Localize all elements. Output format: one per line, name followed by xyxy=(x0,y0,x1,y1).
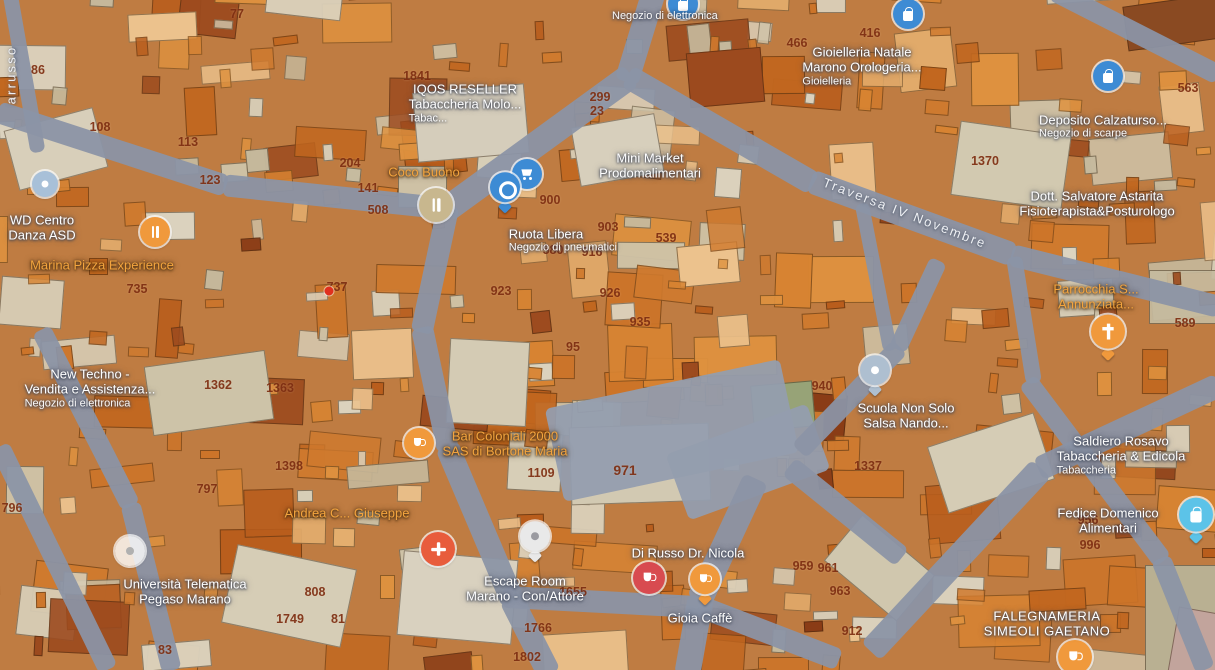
marker-head xyxy=(1093,61,1123,91)
poi-label-universita-telematica-pegaso[interactable]: Università TelematicaPegaso Marano xyxy=(123,577,246,608)
building-block xyxy=(432,43,457,61)
poi-label-line: Scuola Non Solo xyxy=(858,401,955,416)
building-block xyxy=(944,319,968,343)
poi-marker-scuola-salsa[interactable] xyxy=(860,355,890,395)
building-block xyxy=(981,308,1009,330)
parcel-number: 299 xyxy=(590,90,611,104)
marker-head xyxy=(860,355,890,385)
road-segment xyxy=(889,257,947,353)
building-block xyxy=(1036,48,1063,70)
poi-label-line: Ruota Libera xyxy=(509,226,583,241)
building-block xyxy=(929,27,951,36)
poi-marker-coco-buono[interactable] xyxy=(419,188,453,222)
parcel-number: 1370 xyxy=(971,154,999,168)
building-block xyxy=(832,219,843,241)
dot-icon xyxy=(122,543,138,559)
poi-marker-parrocchia-church[interactable] xyxy=(1091,315,1125,360)
poi-label-line: IQOS RESELLER xyxy=(409,82,522,97)
building-block xyxy=(188,36,202,55)
building-block xyxy=(498,43,509,67)
parcel-number: 735 xyxy=(127,282,148,296)
building-block xyxy=(996,358,1017,369)
poi-label-line: Marina Pizza Experience xyxy=(30,257,174,272)
poi-label-line: Tabaccheria & Edicola xyxy=(1057,449,1186,464)
parcel-number: 1802 xyxy=(513,650,541,664)
poi-label-line: Pegaso Marano xyxy=(123,592,246,607)
cup-icon xyxy=(697,571,713,587)
marker-head xyxy=(32,171,58,197)
building-block xyxy=(668,280,686,290)
building-block xyxy=(171,326,185,346)
building-block xyxy=(21,346,35,356)
building-block xyxy=(517,289,532,311)
parcel-number: 1362 xyxy=(204,378,232,392)
fork-icon xyxy=(147,224,163,240)
parcel-number: 1766 xyxy=(524,621,552,635)
building-block xyxy=(216,469,244,507)
building-block xyxy=(297,490,313,502)
parcel-number: 95 xyxy=(566,340,580,354)
building-block xyxy=(220,69,232,89)
poi-label-subtitle: Negozio di scarpe xyxy=(1039,128,1127,141)
parcel-number: 1337 xyxy=(854,459,882,473)
poi-marker-ruota-libera[interactable] xyxy=(490,172,520,212)
poi-label-iqos-reseller[interactable]: IQOS RESELLERTabaccheria Molo...Tabac... xyxy=(409,82,522,113)
poi-label-line: Annunziata... xyxy=(1053,297,1138,312)
building-block xyxy=(552,355,575,379)
building-block xyxy=(380,575,395,599)
building-block xyxy=(241,238,262,253)
building-block xyxy=(1059,98,1083,112)
poi-label-line: Parrocchia S... xyxy=(1053,282,1138,297)
building-block xyxy=(807,256,874,304)
building-block xyxy=(1196,146,1212,155)
marker-head xyxy=(520,521,550,551)
poi-label-line: Saldiero Rosavo xyxy=(1057,434,1186,449)
building-block xyxy=(717,313,750,348)
building-block xyxy=(1177,177,1196,187)
building-block xyxy=(757,21,772,44)
parcel-number: 961 xyxy=(818,561,839,575)
marker-head xyxy=(1179,498,1213,532)
poi-label-line: Prodomalimentari xyxy=(599,166,701,181)
parcel-number: 1363 xyxy=(266,381,294,395)
building-block xyxy=(390,308,413,318)
parcel-number: 996 xyxy=(1080,538,1101,552)
building-block xyxy=(310,401,333,424)
map-canvas[interactable]: 7718418610811312320414150823299900903539… xyxy=(0,0,1215,670)
building-block xyxy=(1046,546,1062,569)
dot-icon xyxy=(867,362,883,378)
terrain-patch xyxy=(144,350,275,436)
marker-head xyxy=(115,536,145,566)
building-block xyxy=(34,636,44,657)
marker-tail xyxy=(1101,347,1115,361)
building-block xyxy=(834,153,844,164)
building-block xyxy=(400,378,409,393)
building-block xyxy=(470,655,483,670)
building-block xyxy=(1123,70,1143,85)
building-block xyxy=(625,345,649,380)
parcel-number: 926 xyxy=(600,286,621,300)
building-block xyxy=(28,274,50,285)
poi-label-gioia-caffe[interactable]: Gioia Caffè xyxy=(668,610,733,625)
parcel-number: 204 xyxy=(340,156,361,170)
street-name-arrusso: arrusso xyxy=(4,46,19,105)
building-block xyxy=(397,485,422,502)
building-block xyxy=(826,440,848,451)
bag-icon xyxy=(1187,505,1205,523)
building-block xyxy=(542,51,562,64)
poi-label-line: New Techno - xyxy=(25,367,156,382)
poi-marker-wd-centro[interactable] xyxy=(32,171,58,197)
parcel-number: 903 xyxy=(598,220,619,234)
building-block xyxy=(919,66,947,91)
poi-label-parrocchia-annunziata[interactable]: Parrocchia S...Annunziata... xyxy=(1053,282,1138,313)
church-icon xyxy=(1099,322,1117,340)
building-block xyxy=(957,588,986,601)
terrain-patch xyxy=(686,47,766,108)
poi-label-line: Tabaccheria Molo... xyxy=(409,97,522,112)
building-block xyxy=(988,372,999,393)
poi-label-line: Mini Market xyxy=(599,151,701,166)
building-block xyxy=(804,620,824,632)
poi-label-new-techno[interactable]: New Techno -Vendita e Assistenza...Negoz… xyxy=(25,367,156,398)
building-block xyxy=(200,450,220,459)
poi-label-saldiero-tabaccheria[interactable]: Saldiero RosavoTabaccheria & EdicolaTaba… xyxy=(1057,434,1186,465)
poi-marker-fedice-domenico[interactable] xyxy=(1179,498,1213,543)
building-block xyxy=(700,633,745,670)
building-block xyxy=(737,0,791,11)
building-block xyxy=(535,21,545,41)
tire-icon xyxy=(497,179,513,195)
poi-label-mini-market-prodomalimentari[interactable]: Mini MarketProdomalimentari xyxy=(599,151,701,182)
parcel-number: 108 xyxy=(90,120,111,134)
parcel-number: 86 xyxy=(31,63,45,77)
fork-icon xyxy=(427,196,445,214)
poi-label-line: Alimentari xyxy=(1057,521,1158,536)
building-block xyxy=(924,99,949,116)
building-block xyxy=(324,465,339,478)
building-block xyxy=(205,298,224,308)
parcel-number: 935 xyxy=(630,315,651,329)
poi-label-subtitle: Gioielleria xyxy=(802,75,851,88)
building-block xyxy=(714,167,743,199)
parcel-number: 912 xyxy=(842,624,863,638)
poi-marker-farmacia-cross[interactable] xyxy=(421,532,455,566)
poi-label-falegnameria-simeoli[interactable]: FALEGNAMERIASIMEOLI GAETANO xyxy=(984,609,1110,640)
poi-label-gioielleria-natale[interactable]: Gioielleria NataleMarono Orologeria...Gi… xyxy=(802,45,921,76)
parcel-number: 81 xyxy=(331,612,345,626)
marker-head xyxy=(404,428,434,458)
cup-icon xyxy=(1066,648,1084,666)
building-block xyxy=(1097,372,1112,396)
bag-icon xyxy=(1100,68,1116,84)
parcel-number: 416 xyxy=(860,26,881,40)
building-block xyxy=(89,0,114,8)
building-block xyxy=(575,268,585,279)
building-block xyxy=(583,301,598,313)
parcel-number: 808 xyxy=(305,585,326,599)
building-block xyxy=(284,55,307,80)
parcel-number: 23 xyxy=(590,104,604,118)
parcel-number: 796 xyxy=(2,501,23,515)
poi-label-scuola-non-solo-salsa[interactable]: Scuola Non SoloSalsa Nando... xyxy=(858,401,955,432)
building-block xyxy=(645,524,654,533)
poi-label-coco-buono[interactable]: Coco Buono xyxy=(388,164,460,179)
marker-head xyxy=(1058,640,1092,670)
building-block xyxy=(68,446,78,465)
building-block xyxy=(128,346,150,356)
building-block xyxy=(204,269,225,291)
building-block xyxy=(928,538,942,559)
poi-label-line: Fedice Domenico xyxy=(1057,506,1158,521)
parcel-number: 563 xyxy=(1178,81,1199,95)
poi-marker-falegnameria-area[interactable] xyxy=(1058,640,1092,670)
parcel-number: 539 xyxy=(656,231,677,245)
parcel-number: 77 xyxy=(230,7,244,21)
building-block xyxy=(1148,366,1167,381)
poi-marker-universita[interactable] xyxy=(115,536,145,566)
building-block xyxy=(142,76,160,94)
poi-label-line: WD Centro xyxy=(8,213,75,228)
poi-label-marina-pizza-experience[interactable]: Marina Pizza Experience xyxy=(30,257,174,272)
parcel-number: 589 xyxy=(1175,316,1196,330)
poi-label-line: Università Telematica xyxy=(123,577,246,592)
marker-head xyxy=(633,562,665,594)
marker-head xyxy=(690,564,720,594)
poi-label-line: Marono Orologeria... xyxy=(802,60,921,75)
poi-label-line: Fisioterapista&Posturologo xyxy=(1019,204,1174,219)
marker-head xyxy=(893,0,923,29)
building-block xyxy=(273,34,298,46)
poi-label-subtitle: Negozio di pneumatici xyxy=(509,242,617,255)
terrain-patch xyxy=(446,338,530,427)
parcel-number: 923 xyxy=(491,284,512,298)
poi-label-escape-room-marano[interactable]: Escape RoomMarano - Con/Attore xyxy=(466,574,584,605)
marker-tail xyxy=(1189,530,1203,544)
poi-marker-gioielleria[interactable] xyxy=(893,0,923,29)
poi-label-line: Vendita e Assistenza... xyxy=(25,382,156,397)
poi-label-bar-coloniali-2000[interactable]: Bar Coloniali 2000SAS di Bortone Maria xyxy=(442,429,567,460)
building-block xyxy=(318,327,328,342)
marker-head xyxy=(490,172,520,202)
building-block xyxy=(449,294,464,308)
poi-label-line: Gioielleria Natale xyxy=(802,45,921,60)
poi-label-line: Marano - Con/Attore xyxy=(466,589,584,604)
parcel-number: 141 xyxy=(358,181,379,195)
building-block xyxy=(351,328,414,381)
building-block xyxy=(934,125,958,136)
building-block xyxy=(0,216,8,263)
building-block xyxy=(809,2,818,13)
poi-label-fedice-domenico-alimentari[interactable]: Fedice DomenicoAlimentari xyxy=(1057,506,1158,537)
building-block xyxy=(1117,612,1129,629)
building-block xyxy=(358,451,366,466)
poi-marker-di-russo[interactable] xyxy=(633,562,665,594)
cup-icon xyxy=(411,435,427,451)
building-block xyxy=(249,97,264,116)
poi-label-ruota-libera[interactable]: Ruota LiberaNegozio di pneumatici xyxy=(509,226,583,241)
poi-label-andrea-giuseppe[interactable]: Andrea C... Giuseppe xyxy=(284,505,409,520)
parcel-number: 508 xyxy=(368,203,389,217)
poi-label-line: Gioia Caffè xyxy=(668,610,733,625)
building-block xyxy=(858,89,873,112)
building-block xyxy=(706,206,746,251)
parcel-number: 1109 xyxy=(527,466,554,480)
building-block xyxy=(265,0,343,22)
poi-label-line: Bar Coloniali 2000 xyxy=(442,429,567,444)
building-block xyxy=(1200,196,1215,262)
cross-icon xyxy=(429,540,447,558)
poi-marker-marina-pizza[interactable] xyxy=(140,217,170,247)
parcel-number: 797 xyxy=(197,482,218,496)
bag-icon xyxy=(900,6,916,22)
dot-icon xyxy=(527,528,543,544)
building-block xyxy=(812,611,838,620)
poi-label-line: Coco Buono xyxy=(388,164,460,179)
red-dot-marker[interactable] xyxy=(325,287,334,296)
building-block xyxy=(784,592,812,612)
building-block xyxy=(825,300,845,310)
building-block xyxy=(497,517,521,530)
parcel-number: 113 xyxy=(178,135,198,149)
poi-label-line: Danza ASD xyxy=(8,228,75,243)
building-block xyxy=(955,42,979,64)
poi-label-line: FALEGNAMERIA xyxy=(984,609,1110,624)
building-block xyxy=(448,61,470,72)
building-block xyxy=(60,496,77,514)
building-block xyxy=(804,93,816,105)
poi-label-subtitle: Tabac... xyxy=(409,112,448,125)
building-block xyxy=(1001,393,1022,415)
building-block xyxy=(1000,203,1021,224)
poi-label-line: SAS di Bortone Maria xyxy=(442,444,567,459)
building-block xyxy=(183,87,216,138)
marker-head xyxy=(419,188,453,222)
building-block xyxy=(89,331,108,346)
poi-marker-escape-room[interactable] xyxy=(520,521,550,561)
building-block xyxy=(695,305,714,315)
poi-label-line: Andrea C... Giuseppe xyxy=(284,505,409,520)
building-block xyxy=(988,554,1030,578)
building-block xyxy=(717,258,728,268)
cart-icon xyxy=(519,166,535,182)
parcel-number: 900 xyxy=(540,193,561,207)
building-block xyxy=(462,312,476,322)
poi-label-subtitle: Tabaccheria xyxy=(1057,464,1116,477)
cup-icon xyxy=(640,569,657,586)
marker-head xyxy=(1091,315,1125,349)
poi-label-dott-salvatore-astarita[interactable]: Dott. Salvatore AstaritaFisioterapista&P… xyxy=(1019,189,1174,220)
building-block xyxy=(100,239,123,252)
poi-marker-gioia-caffe[interactable] xyxy=(690,564,720,604)
building-block xyxy=(333,528,356,548)
parcel-number: 1398 xyxy=(275,459,303,473)
dot-icon xyxy=(38,177,52,191)
building-block xyxy=(135,37,149,57)
building-block xyxy=(1202,548,1215,558)
building-block xyxy=(51,87,67,106)
building-block xyxy=(727,579,749,595)
building-block xyxy=(214,19,234,30)
poi-label-subtitle: Negozio di elettronica xyxy=(25,397,131,410)
building-block xyxy=(323,144,334,161)
poi-marker-deposito-calzature[interactable] xyxy=(1093,61,1123,91)
poi-label-line: Dott. Salvatore Astarita xyxy=(1019,189,1174,204)
building-block xyxy=(801,312,829,330)
poi-label-line: Deposito Calzaturso... xyxy=(1039,112,1167,127)
poi-label-deposito-calzature[interactable]: Deposito Calzaturso...Negozio di scarpe xyxy=(1039,112,1167,127)
poi-label-line: Di Russo Dr. Nicola xyxy=(632,545,745,560)
building-block xyxy=(352,388,374,411)
parcel-number: 971 xyxy=(613,462,636,478)
parcel-number: 959 xyxy=(793,559,814,573)
poi-label-wd-centro-danza[interactable]: WD CentroDanza ASD xyxy=(8,213,75,244)
poi-marker-bar-coloniali[interactable] xyxy=(404,428,434,458)
building-block xyxy=(423,651,474,670)
poi-label-di-russo-dr-nicola[interactable]: Di Russo Dr. Nicola xyxy=(632,545,745,560)
building-block xyxy=(624,216,652,229)
poi-label-line: Salsa Nando... xyxy=(858,416,955,431)
parcel-number: 963 xyxy=(830,584,851,598)
building-block xyxy=(36,592,46,608)
poi-label-line: Escape Room xyxy=(466,574,584,589)
poi-label-line: SIMEOLI GAETANO xyxy=(984,624,1110,639)
building-block xyxy=(250,47,275,71)
building-block xyxy=(244,148,269,173)
building-block xyxy=(760,295,783,305)
parcel-number: 123 xyxy=(200,173,221,187)
building-block xyxy=(762,56,806,95)
parcel-number: 940 xyxy=(812,379,833,393)
building-block xyxy=(530,310,553,335)
building-block xyxy=(832,469,904,497)
marker-head xyxy=(140,217,170,247)
marker-head xyxy=(421,532,455,566)
building-block xyxy=(1083,155,1097,174)
building-block xyxy=(347,0,365,1)
parcel-number: 83 xyxy=(158,643,172,657)
building-block xyxy=(816,0,847,13)
parcel-number: 1749 xyxy=(276,612,304,626)
building-block xyxy=(1028,220,1055,243)
poi-label-subtitle: Negozio di elettronica xyxy=(612,10,718,23)
building-block xyxy=(759,255,771,276)
